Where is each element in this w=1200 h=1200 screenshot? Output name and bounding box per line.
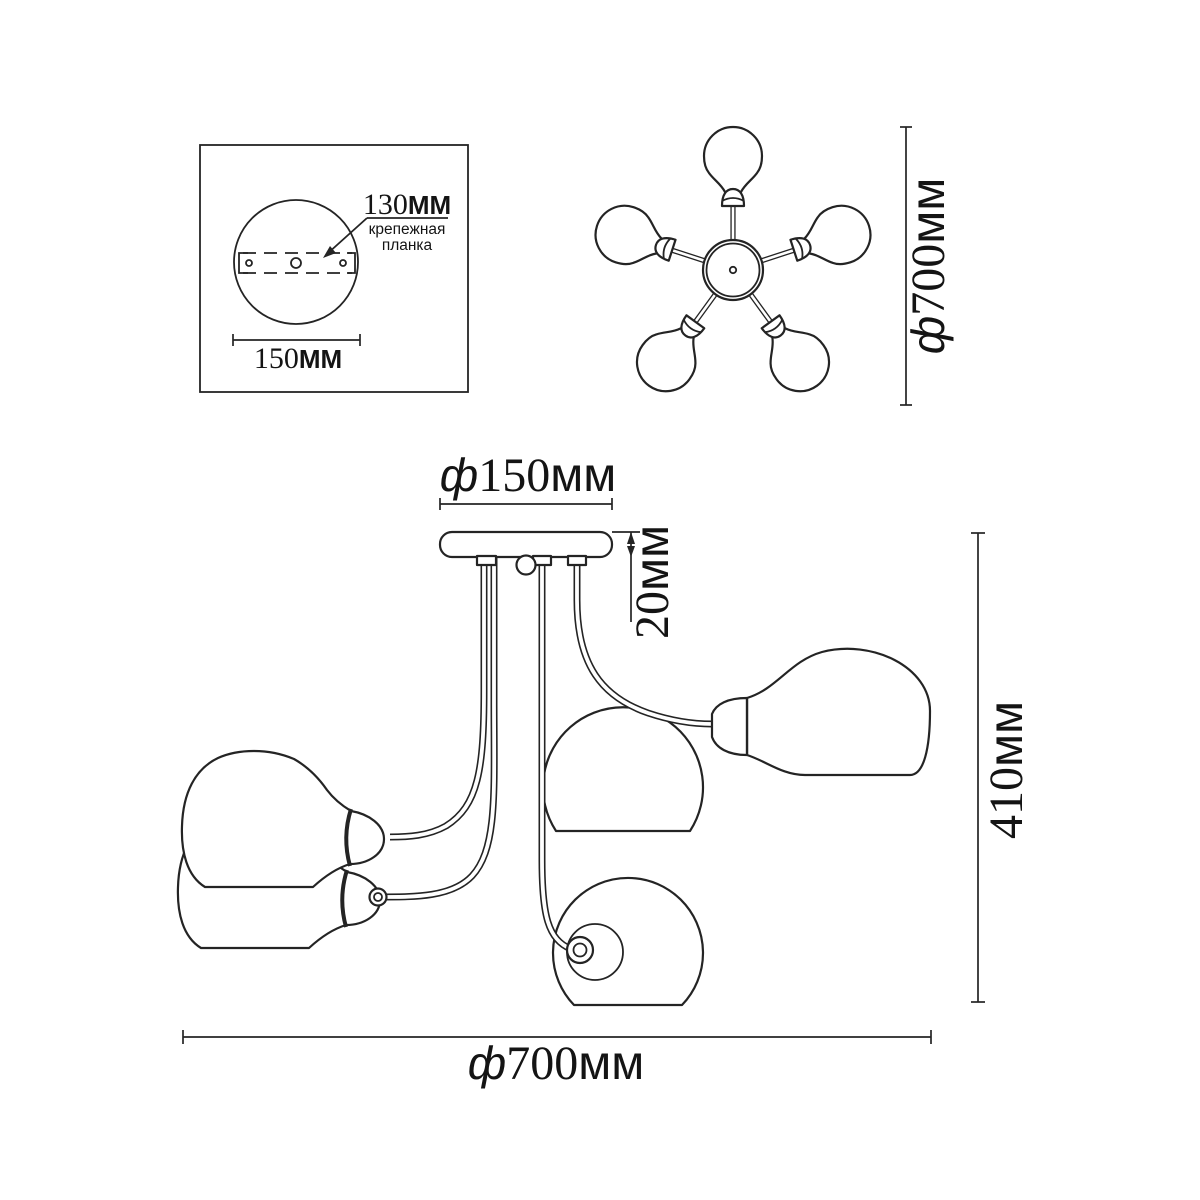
- ceiling-canopy: [440, 532, 612, 557]
- technical-drawing-svg: 130ММ крепежная планка 150ММ: [0, 0, 1200, 1200]
- canopy-ball: [517, 556, 536, 575]
- bracket-hole-center: [291, 258, 301, 268]
- bulb-top-view: [704, 127, 762, 192]
- chandelier-dimension-drawing: 130ММ крепежная планка 150ММ: [0, 0, 1200, 1200]
- top-view-diameter-dimension: ф700мм: [900, 127, 955, 405]
- chandelier-side-view: ф150мм 20мм 410мм ф700мм: [178, 449, 1033, 1090]
- right-bulb-glass: [747, 649, 930, 775]
- overall-height-dimension: 410мм: [971, 533, 1033, 1002]
- canopy-diameter-dimension: ф150мм: [440, 449, 616, 510]
- chandelier-top-view: ф700мм: [588, 127, 955, 405]
- bottom-arm-ring: [567, 937, 593, 963]
- bracket-hole-left: [246, 260, 252, 266]
- upper-left-bulb-glass: [182, 751, 351, 887]
- arm-lower-left: [381, 557, 494, 897]
- overall-diameter-label: ф700мм: [468, 1037, 644, 1090]
- mounting-bracket: [239, 253, 355, 273]
- right-bulb-socket: [712, 698, 747, 755]
- top-view-arm: [588, 198, 713, 288]
- bracket-caption-line2: планка: [382, 237, 433, 254]
- top-view-arm: [704, 127, 762, 240]
- bracket-hole-right: [340, 260, 346, 266]
- upper-left-bulb-shade: [182, 751, 384, 887]
- canopy-height-label: 20мм: [626, 525, 679, 639]
- overall-height-label: 410мм: [980, 701, 1033, 839]
- top-view-arm: [753, 198, 878, 288]
- top-view-diameter-label: ф700мм: [902, 178, 955, 354]
- canopy-height-dimension: 20мм: [612, 525, 679, 639]
- plate-diameter-label: 150ММ: [254, 342, 342, 375]
- mounting-plate-detail-view: 130ММ крепежная планка 150ММ: [200, 145, 468, 392]
- plate-diameter-dimension: 150ММ: [233, 334, 360, 375]
- middle-sphere-shade: [543, 707, 703, 831]
- right-bulb-shade: [712, 649, 930, 775]
- bracket-caption-line1: крепежная: [369, 221, 446, 238]
- upper-left-bulb-socket: [346, 811, 384, 864]
- bracket-dimension-label: 130ММ: [363, 188, 451, 221]
- lower-left-arm-ring: [370, 889, 387, 906]
- top-view-hub: [703, 240, 763, 300]
- overall-diameter-dimension: ф700мм: [183, 1030, 931, 1090]
- canopy-diameter-label: ф150мм: [440, 449, 616, 502]
